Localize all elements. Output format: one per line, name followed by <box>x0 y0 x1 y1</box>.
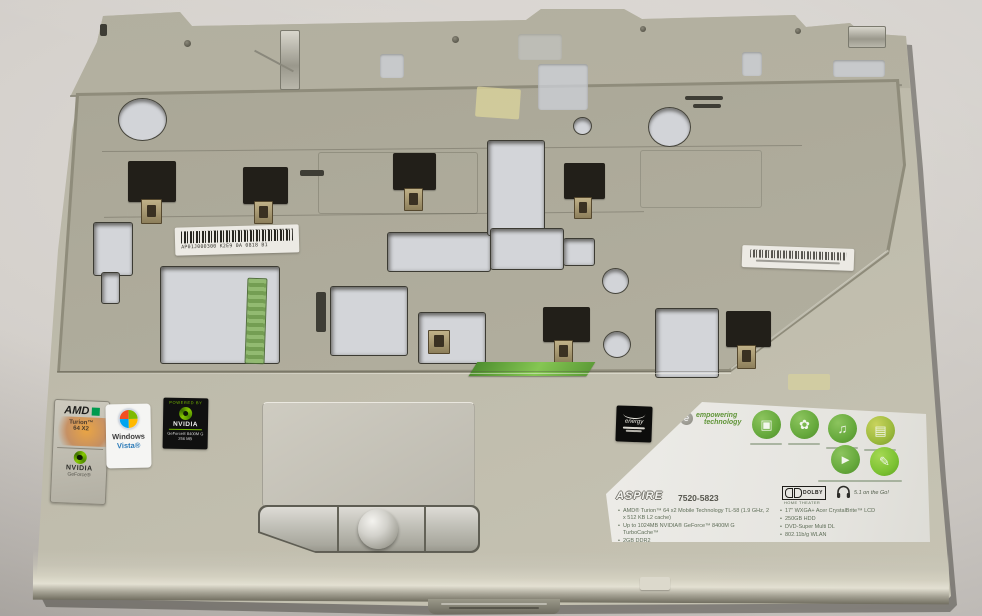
spec-column-right: 17" WXGA+ Acer CrystalBrite™ LCD 250GB H… <box>780 508 920 540</box>
amd-turion-sticker: AMD Turion™ 64 X2 NVIDIA GeForce® <box>50 399 110 505</box>
ribbon-cable <box>245 278 268 365</box>
energy-star-word: energy <box>616 418 652 425</box>
spec-item: 17" WXGA+ Acer CrystalBrite™ LCD <box>780 508 920 515</box>
adhesive-pad <box>380 54 404 78</box>
foam-pad <box>543 307 590 342</box>
display-icon: ▣ <box>752 410 781 439</box>
vista-text: Vista® <box>106 441 151 451</box>
adhesive-pad <box>833 60 885 77</box>
windows-flag-icon <box>118 409 138 429</box>
palmrest-seam <box>57 371 731 372</box>
kapton-tape <box>788 374 830 390</box>
adhesive-pad <box>742 52 762 76</box>
icon-caption <box>818 480 902 482</box>
geforce-text: GeForce® <box>52 471 106 479</box>
round-hole <box>602 268 629 294</box>
front-edge-sticker <box>640 577 670 590</box>
media-icon: ► <box>831 445 860 474</box>
barcode <box>181 229 293 244</box>
spec-item: DVD-Super Multi DL <box>780 524 920 531</box>
illegible-text-line <box>756 260 840 265</box>
foam-pad <box>128 161 176 202</box>
metal-clip <box>737 345 756 369</box>
button-divider <box>337 507 339 551</box>
hinge-bracket <box>848 26 886 48</box>
dolby-d-icon <box>794 488 802 498</box>
slot <box>693 104 721 108</box>
slot <box>100 24 107 36</box>
aspire-logo-text: ASPIRE <box>616 490 663 502</box>
empowering-word: empowering <box>696 412 741 419</box>
screw-hole <box>640 26 646 32</box>
adhesive-pad <box>538 64 588 110</box>
screw-hole <box>795 28 801 34</box>
dolby-d-icon <box>785 488 793 498</box>
barcode-sticker-center: AP01J000300 K2E9 0A 0818 B1 <box>175 224 300 255</box>
slot <box>316 292 326 332</box>
spec-item: Up to 1024MB NVIDIA® GeForce™ 8400M G Tu… <box>618 523 770 537</box>
gpu-memory-text: 256 MB <box>163 436 208 442</box>
cutout <box>487 140 545 236</box>
cutout <box>93 222 133 276</box>
bed-platform-outline <box>640 150 762 208</box>
spec-item: 802.11b/g WLAN <box>780 532 920 539</box>
energy-star-logo: energy <box>615 405 652 442</box>
metal-clip <box>141 199 162 224</box>
amd-logo-text: AMD <box>64 404 90 417</box>
amd-arrow-icon <box>91 407 99 415</box>
foam-pad <box>243 167 288 204</box>
metal-clip <box>428 330 450 354</box>
round-hole <box>118 98 167 141</box>
nvidia-brand-text: NVIDIA <box>163 421 208 429</box>
screw-hole <box>184 40 191 47</box>
round-hole <box>573 117 592 135</box>
windows-text: Windows <box>106 432 151 442</box>
nvidia-eye-icon <box>179 407 192 420</box>
barcode-sticker-right <box>742 245 855 271</box>
spec-item: AMD® Turion™ 64 x2 Mobile Technology TL-… <box>618 508 770 522</box>
metal-clip <box>554 340 573 364</box>
dolby-subtext: HOME THEATER <box>784 500 820 505</box>
cutout <box>387 232 491 272</box>
metal-clip <box>254 201 273 224</box>
touchpad <box>262 402 475 508</box>
turion-text2: 64 X2 <box>54 425 108 433</box>
pen-icon: ✎ <box>870 447 899 476</box>
slot <box>300 170 324 176</box>
front-edge <box>33 550 949 605</box>
spec-item: 250GB HDD <box>780 516 920 523</box>
metal-clip <box>404 188 423 211</box>
cutout <box>655 308 719 378</box>
foam-pad <box>393 153 436 190</box>
model-number: 7520-5823 <box>678 493 719 503</box>
audio-tag-text: 5.1 on the Go! <box>854 490 889 496</box>
icon-caption <box>750 443 782 445</box>
touchpad-scroll-button <box>358 509 398 549</box>
metal-clip <box>574 197 592 219</box>
technology-word: technology <box>696 419 741 426</box>
photo-of-laptop-palmrest: AP01J000300 K2E9 0A 0818 B1 AMD Turion™ … <box>0 0 982 616</box>
round-hole <box>648 107 691 147</box>
powered-by-text: POWERED BY <box>163 398 208 406</box>
headphones-icon <box>836 485 851 499</box>
windows-vista-sticker: Windows Vista® <box>105 404 151 469</box>
foam-pad <box>726 311 771 347</box>
touchpad-button-right <box>426 507 476 551</box>
adhesive-pad <box>518 34 562 60</box>
kapton-tape <box>475 87 521 120</box>
cutout <box>490 228 564 270</box>
dolby-logo: DOLBY <box>782 486 826 500</box>
barcode-text: AP01J000300 K2E9 0A 0818 B1 <box>181 242 268 250</box>
front-latch <box>428 599 560 614</box>
round-hole <box>603 331 631 358</box>
foam-pad <box>564 163 605 199</box>
cutout <box>330 286 408 356</box>
palmrest-seam-highlight <box>57 373 731 374</box>
cutout <box>563 238 595 266</box>
hinge-bracket <box>280 30 300 90</box>
spec-column-left: AMD® Turion™ 64 x2 Mobile Technology TL-… <box>618 508 770 546</box>
cutout <box>101 272 120 304</box>
eco-icon: ✿ <box>790 410 819 439</box>
audio-icon: ♫ <box>828 414 857 443</box>
nvidia-eye-icon <box>73 451 87 465</box>
nvidia-geforce-sticker: POWERED BY NVIDIA GeForce® 8400M G 256 M… <box>163 398 209 450</box>
dolby-word: DOLBY <box>803 490 823 496</box>
slot <box>685 96 723 100</box>
icon-caption <box>788 443 820 445</box>
battery-icon: ▤ <box>866 416 895 445</box>
screw-hole <box>452 36 459 43</box>
